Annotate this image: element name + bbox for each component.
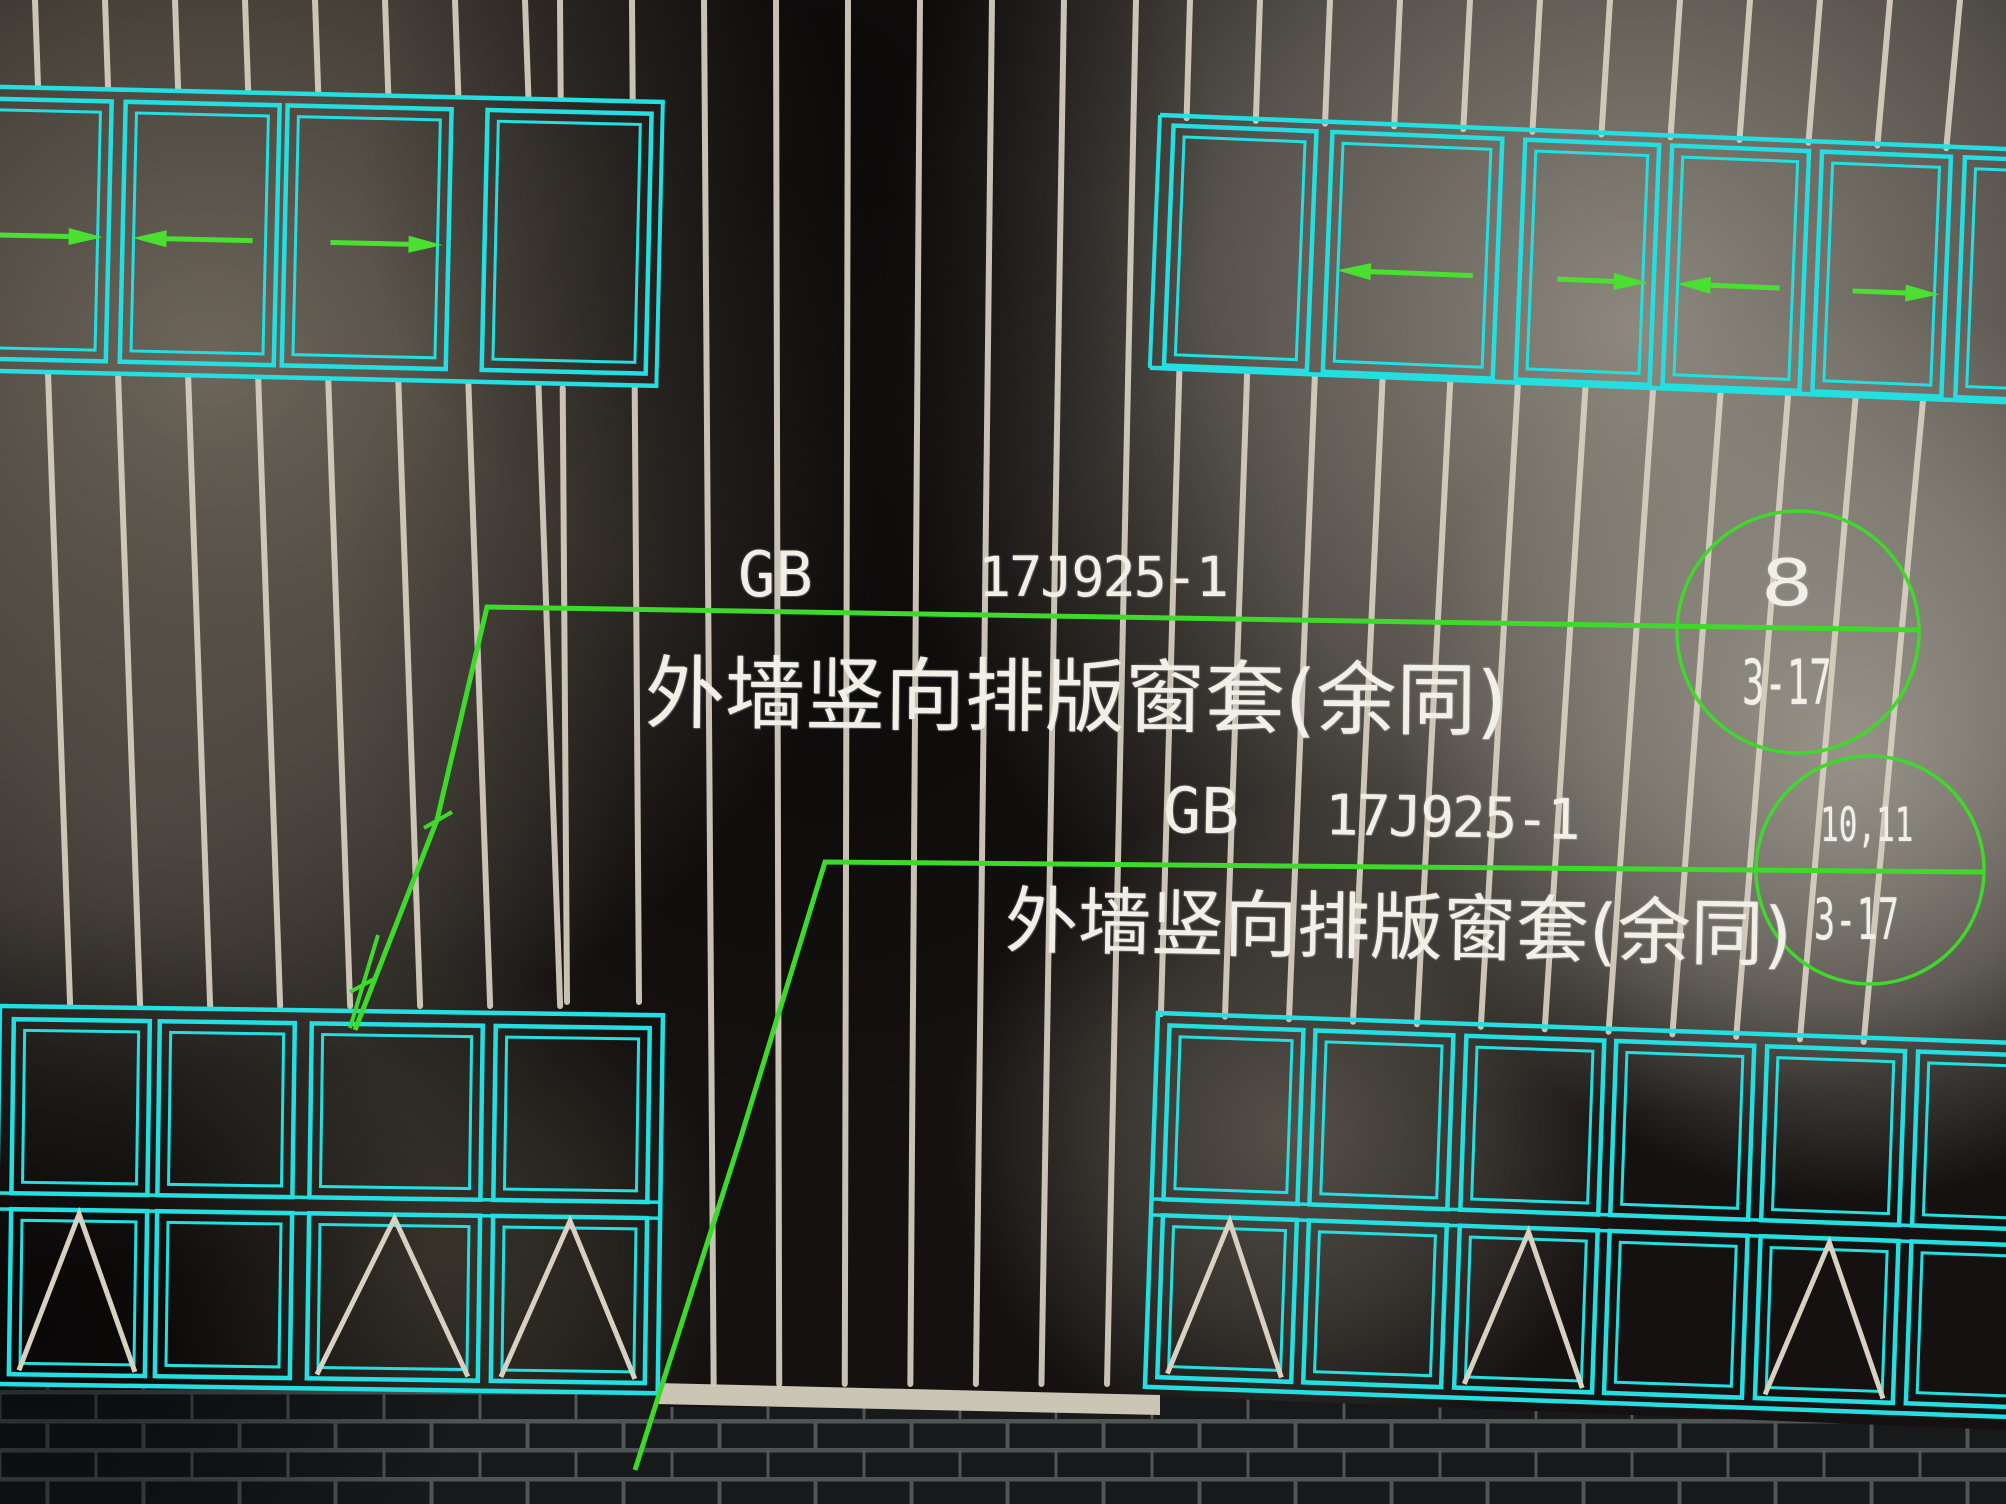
callout-2-code-label: GB xyxy=(1163,779,1240,843)
callout-1-code-row: GB 17J925-1 xyxy=(738,542,1258,612)
detail-bubble-2-number: 10,11 xyxy=(1820,802,1906,849)
cad-screen-photo: GB 17J925-1 外墙竖向排版窗套(余同) GB 17J925-1 外墙竖… xyxy=(0,0,2006,1504)
callout-1-description: 外墙竖向排版窗套(余同) xyxy=(645,654,1508,742)
callout-1-code-number: 17J925-1 xyxy=(978,550,1227,605)
callout-2-description: 外墙竖向排版窗套(余同) xyxy=(1004,885,1792,972)
detail-bubble-2-sheet: 3-17 xyxy=(1814,892,1882,949)
elevation-canvas xyxy=(0,0,2006,1504)
detail-bubble-1-number: 8 xyxy=(1733,552,1841,616)
shadow-overlays xyxy=(0,0,2006,1504)
callout-1-code-label: GB xyxy=(738,544,813,606)
callout-2-code-row: GB 17J925-1 xyxy=(1162,779,1683,861)
detail-bubble-1-sheet: 3-17 xyxy=(1742,652,1808,714)
callout-2-code-number: 17J925-1 xyxy=(1325,788,1580,849)
